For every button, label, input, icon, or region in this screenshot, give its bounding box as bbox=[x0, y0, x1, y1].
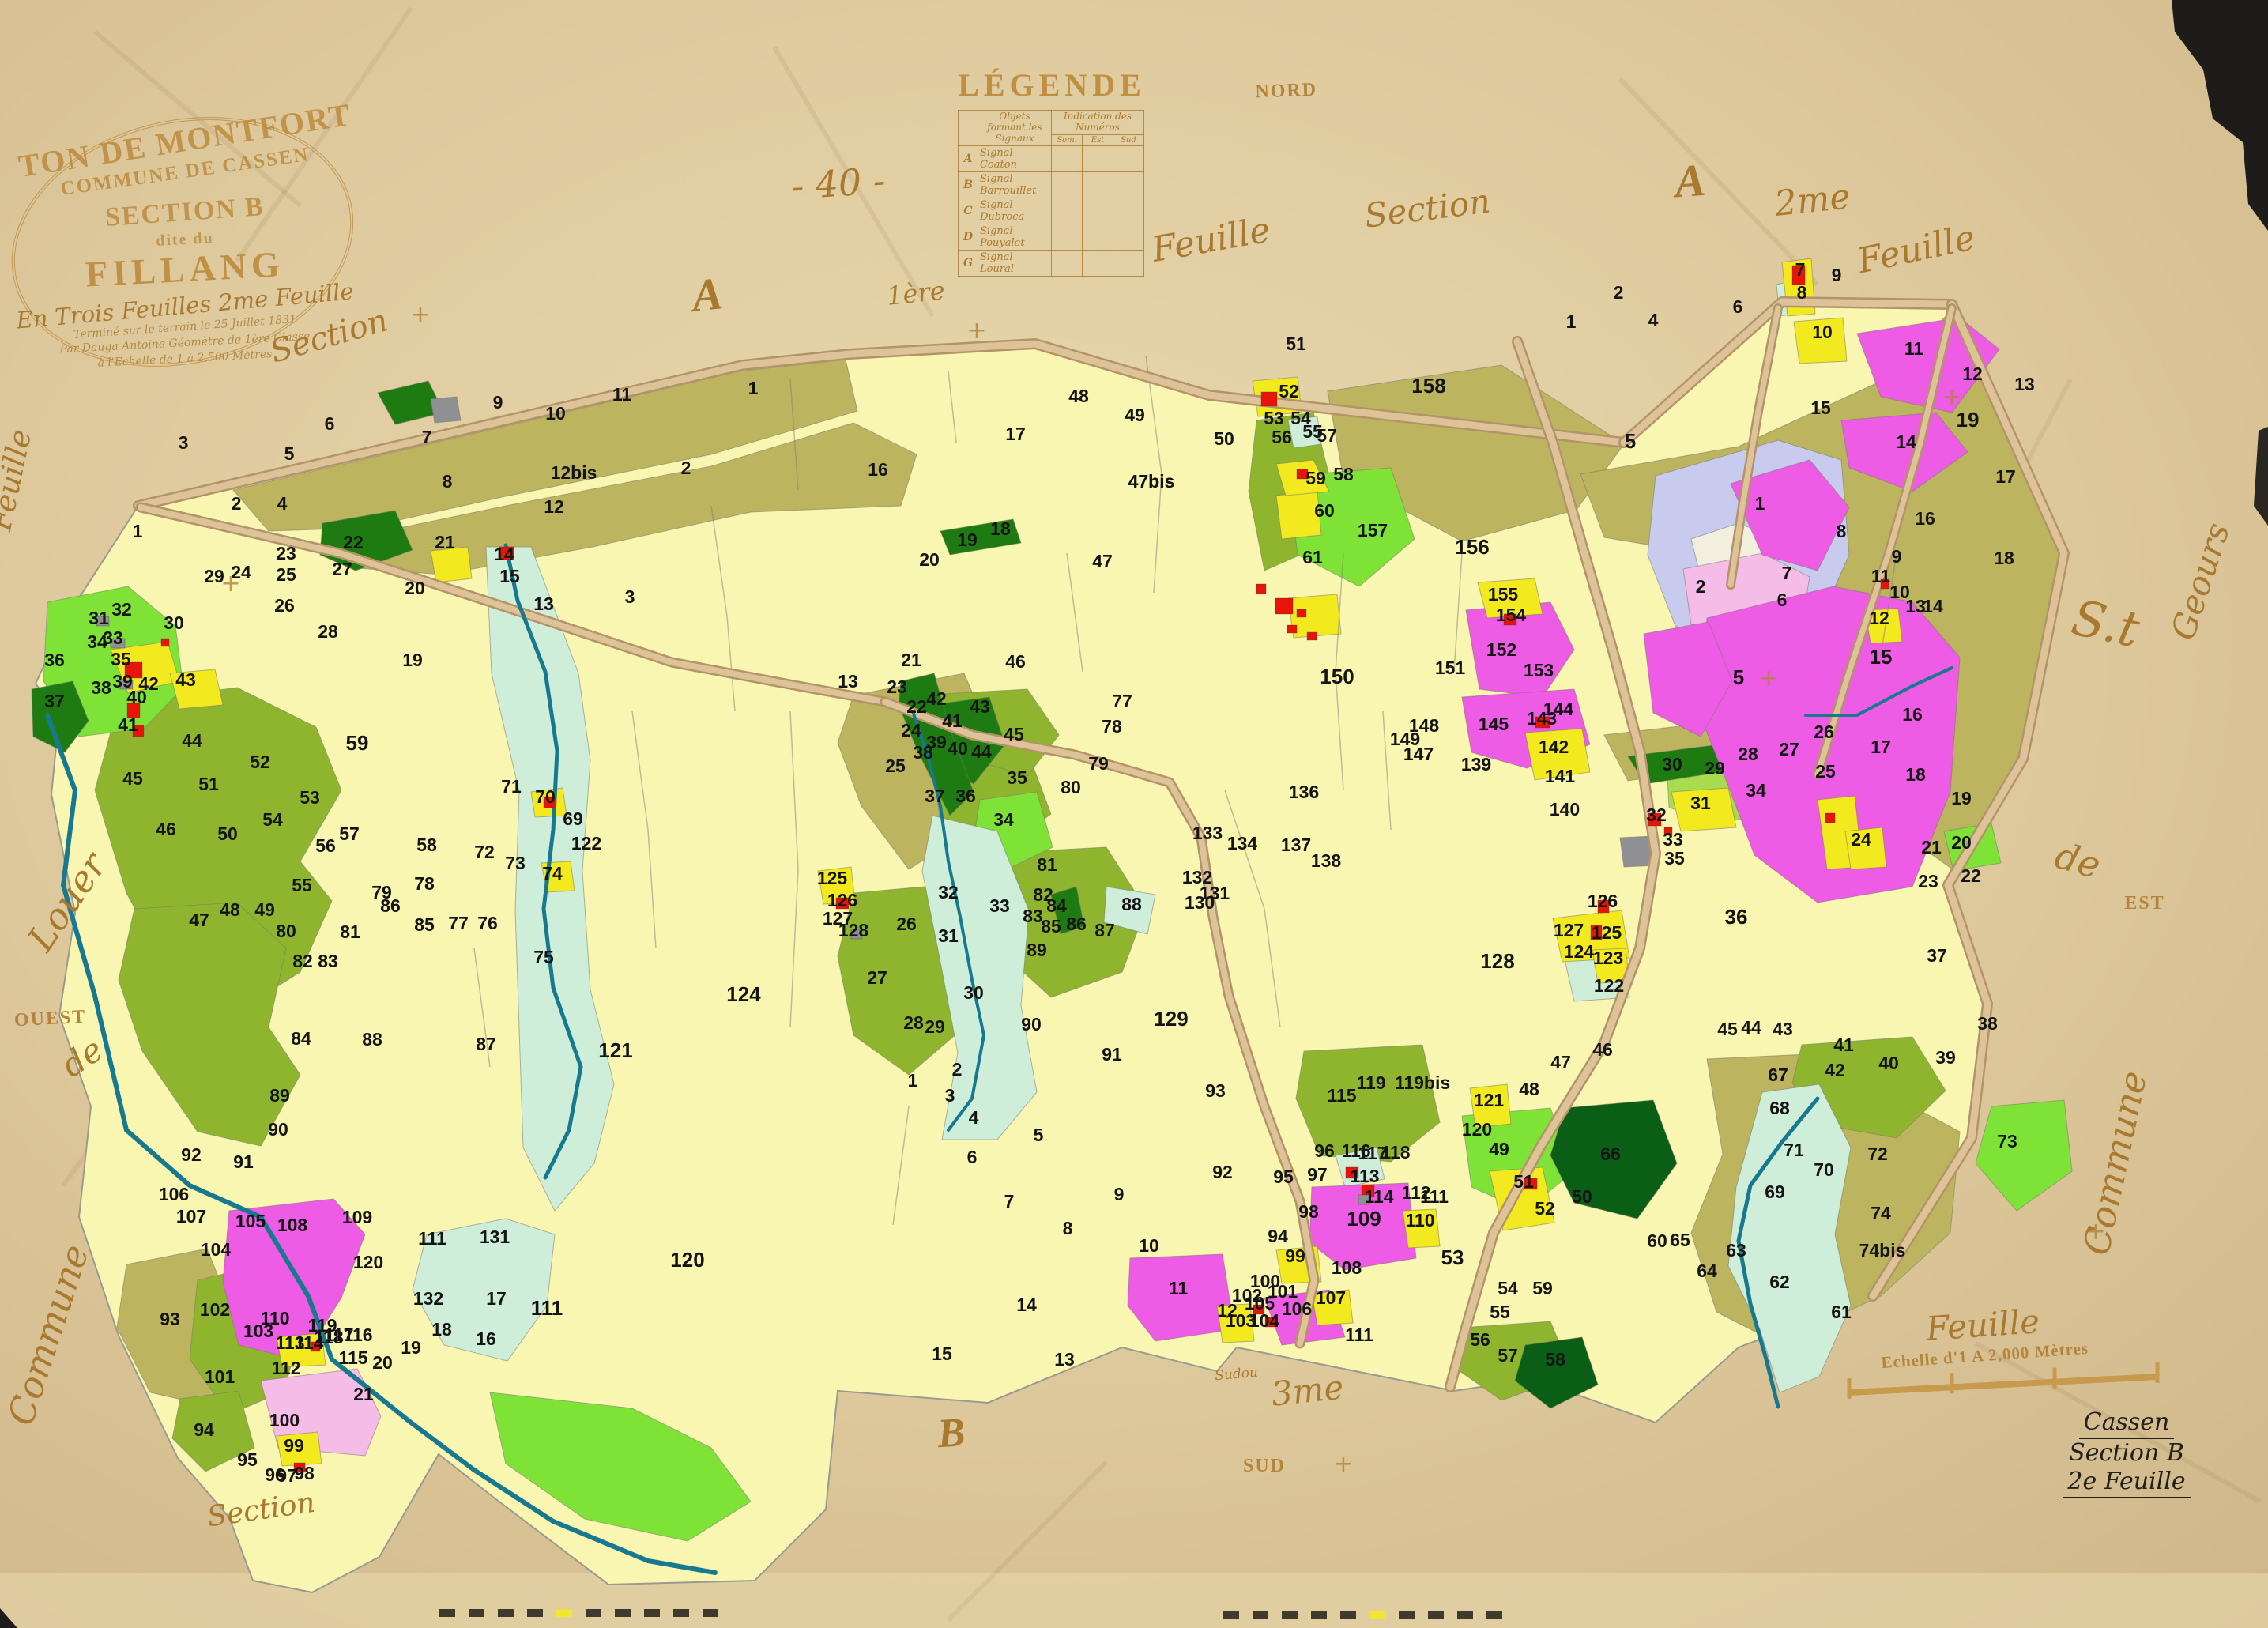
parcel-number: 88 bbox=[1121, 894, 1142, 914]
parcel-number: 128 bbox=[838, 920, 869, 940]
parcel-number: 18 bbox=[1905, 764, 1926, 785]
parcel-number: 55 bbox=[292, 875, 312, 895]
parcel-number: 142 bbox=[1539, 737, 1569, 757]
survey-cross: + bbox=[410, 301, 430, 329]
note-section: Section B bbox=[2036, 1439, 2217, 1468]
parcel-number: 153 bbox=[1524, 660, 1554, 680]
parcel-number: 6 bbox=[1777, 590, 1788, 610]
parcel-number: 109 bbox=[1347, 1207, 1381, 1230]
parcel-number: 85 bbox=[414, 914, 435, 935]
parcel-number: 74 bbox=[542, 863, 563, 884]
parcel-number: 36 bbox=[955, 786, 976, 806]
margin-label: 3me bbox=[1269, 1367, 1345, 1413]
parcel-number: 22 bbox=[1961, 865, 1981, 886]
parcel-number: 152 bbox=[1486, 639, 1516, 660]
parcel-number: 18 bbox=[1994, 548, 2014, 568]
parcel-number: 9 bbox=[493, 392, 503, 413]
parcel-number: 53 bbox=[1441, 1245, 1464, 1269]
parcel-number: 47bis bbox=[1128, 471, 1175, 492]
parcel-number: 91 bbox=[1102, 1044, 1122, 1065]
parcel-number: 77 bbox=[448, 913, 469, 933]
edge-tick bbox=[1340, 1611, 1356, 1619]
parcel-number: 60 bbox=[1647, 1230, 1667, 1251]
parcel-number: 42 bbox=[138, 673, 159, 694]
edge-tick bbox=[673, 1609, 689, 1617]
parcel-number: 70 bbox=[1814, 1159, 1834, 1180]
parcel-number: 28 bbox=[318, 621, 338, 642]
parcel-number: 12 bbox=[544, 496, 564, 517]
parcel-number: 93 bbox=[1205, 1080, 1226, 1101]
parcel-number: 105 bbox=[235, 1211, 266, 1231]
parcel-number: 121 bbox=[598, 1038, 632, 1062]
parcel-number: 25 bbox=[1815, 761, 1836, 782]
parcel-number: 69 bbox=[1765, 1181, 1785, 1202]
parcel-number: 72 bbox=[1867, 1144, 1888, 1164]
parcel-number: 17 bbox=[1995, 466, 2016, 487]
parcel-number: 17 bbox=[486, 1288, 507, 1309]
parcel-number: 19 bbox=[401, 1337, 421, 1358]
parcel-number: 78 bbox=[1102, 716, 1122, 737]
parcel-number: 94 bbox=[1268, 1226, 1288, 1246]
parcel-number: 9 bbox=[1892, 546, 1902, 567]
parcel-number: 45 bbox=[1004, 724, 1024, 744]
parcel-number: 132 bbox=[413, 1288, 443, 1309]
parcel-number: 6 bbox=[967, 1147, 978, 1167]
parcel-number: 123 bbox=[1593, 948, 1623, 968]
parcel-number: 74bis bbox=[1859, 1240, 1906, 1261]
parcel-number: 4 bbox=[1648, 310, 1659, 330]
legend-row-label: Signal Coaton bbox=[978, 145, 1052, 171]
parcel-number: 49 bbox=[1489, 1139, 1509, 1159]
parcel-number: 157 bbox=[1358, 520, 1388, 541]
parcel-number: 48 bbox=[220, 899, 240, 920]
parcel-number: 116 bbox=[1341, 1140, 1370, 1161]
parcel-number: 37 bbox=[925, 786, 945, 806]
parcel-number: 5 bbox=[1625, 429, 1636, 453]
parcel-number: 83 bbox=[1023, 906, 1043, 926]
building-mark bbox=[1297, 609, 1306, 617]
parcel-number: 115 bbox=[338, 1347, 367, 1368]
parcel-number: 87 bbox=[476, 1034, 496, 1054]
parcel-number: 120 bbox=[353, 1252, 383, 1272]
legend-empty-cell bbox=[1052, 250, 1083, 276]
parcel-number: 111 bbox=[1420, 1186, 1449, 1207]
legend-subheader: Est bbox=[1083, 134, 1113, 145]
parcel-number: 90 bbox=[268, 1119, 288, 1140]
parcel-number: 34 bbox=[993, 809, 1014, 830]
building-mark bbox=[161, 639, 169, 646]
parcel-number: 108 bbox=[1332, 1257, 1362, 1278]
parcel-number: 83 bbox=[318, 951, 338, 971]
parcel-number: 41 bbox=[942, 710, 963, 731]
legend-empty-cell bbox=[1052, 171, 1083, 198]
parcel-number: 57 bbox=[1317, 425, 1337, 446]
parcel-number: 21 bbox=[901, 650, 921, 670]
parcel-number: 36 bbox=[1725, 905, 1748, 929]
parcel-number: 92 bbox=[1212, 1162, 1233, 1182]
parcel-number: 11 bbox=[1904, 338, 1924, 359]
parcel-number: 5 bbox=[1034, 1125, 1044, 1145]
parcel-number: 20 bbox=[405, 578, 425, 598]
parcel-number: 46 bbox=[156, 819, 176, 839]
building-mark bbox=[1307, 632, 1317, 640]
parcel-number: 15 bbox=[932, 1343, 952, 1364]
parcel-number: 74 bbox=[1871, 1203, 1891, 1223]
parcel-number: 12bis bbox=[551, 462, 597, 483]
parcel-number: 18 bbox=[431, 1319, 452, 1340]
parcel-number: 4 bbox=[277, 493, 288, 514]
parcel-number: 3 bbox=[945, 1085, 955, 1106]
parcel-number: 2 bbox=[1696, 576, 1706, 597]
parcel-number: 38 bbox=[1977, 1013, 1998, 1034]
legend-row: GSignal Loural bbox=[959, 250, 1144, 276]
parcel-number: 36 bbox=[44, 650, 65, 670]
parcel-number: 50 bbox=[217, 823, 238, 844]
parcel-number: 53 bbox=[1264, 408, 1284, 428]
parcel-number: 61 bbox=[1302, 547, 1323, 567]
parcel-number: 59 bbox=[1305, 468, 1326, 488]
parcel-number: 111 bbox=[531, 1296, 563, 1320]
parcel-number: 49 bbox=[1125, 405, 1145, 425]
parcel-number: 87 bbox=[1094, 920, 1115, 940]
parcel-number: 9 bbox=[1114, 1184, 1125, 1204]
parcel-number: 24 bbox=[901, 720, 921, 741]
parcel-number: 46 bbox=[1592, 1039, 1613, 1060]
edge-tick bbox=[1311, 1611, 1327, 1619]
parcel-number: 2 bbox=[232, 493, 242, 514]
survey-cross: + bbox=[1758, 665, 1778, 692]
parcel-number: 47 bbox=[189, 910, 209, 930]
parcel-number: 114 bbox=[1364, 1186, 1393, 1207]
legend-row-label: Signal Loural bbox=[978, 250, 1052, 276]
parcel-number: 51 bbox=[198, 774, 219, 794]
parcel-number: 121 bbox=[1474, 1090, 1505, 1110]
parcel-number: 116 bbox=[343, 1325, 372, 1345]
parcel-number: 58 bbox=[1545, 1349, 1565, 1370]
parcel-number: 106 bbox=[1282, 1298, 1312, 1319]
edge-tick bbox=[586, 1609, 601, 1617]
parcel-number: 66 bbox=[1600, 1144, 1621, 1164]
parcel-number: 158 bbox=[1411, 374, 1445, 398]
parcel-number: 6 bbox=[325, 413, 335, 434]
parcel-number: 27 bbox=[332, 559, 352, 579]
parcel-number: 44 bbox=[1741, 1017, 1761, 1038]
parcel-number: 98 bbox=[1298, 1201, 1319, 1222]
parcel-number: 35 bbox=[111, 649, 131, 669]
legend-row-letter: B bbox=[959, 171, 978, 198]
parcel-number: 73 bbox=[1997, 1131, 2017, 1151]
parcel-number: 99 bbox=[1285, 1245, 1305, 1266]
legend-empty-cell bbox=[1083, 250, 1113, 276]
parcel-number: 16 bbox=[1915, 508, 1935, 529]
parcel-number: 21 bbox=[1921, 837, 1942, 857]
parcel-number: 133 bbox=[1192, 823, 1223, 843]
parcel-number: 120 bbox=[670, 1248, 704, 1272]
parcel-number: 101 bbox=[205, 1366, 235, 1387]
parcel-number: 55 bbox=[1490, 1302, 1510, 1322]
parcel-number: 60 bbox=[1314, 500, 1335, 521]
margin-label: NORD bbox=[1255, 80, 1318, 103]
parcel-number: 13 bbox=[533, 594, 554, 614]
edge-tick bbox=[1399, 1611, 1415, 1619]
edge-tick bbox=[615, 1609, 631, 1617]
parcel-number: 80 bbox=[276, 921, 296, 941]
parcel-number: 147 bbox=[1403, 744, 1434, 764]
parcel-number: 76 bbox=[477, 913, 498, 933]
legend-row: BSignal Barrouillet bbox=[959, 171, 1144, 198]
parcel-number: 126 bbox=[1588, 891, 1618, 911]
parcel-number: 96 bbox=[1314, 1140, 1335, 1161]
parcel-number: 120 bbox=[1462, 1119, 1492, 1140]
parcel-number: 129 bbox=[1154, 1007, 1188, 1031]
parcel-number: 85 bbox=[1041, 916, 1061, 936]
legend-empty-cell bbox=[1052, 224, 1083, 250]
parcel-number: 29 bbox=[925, 1016, 945, 1037]
parcel-number: 71 bbox=[1784, 1140, 1804, 1160]
parcel-number: 27 bbox=[1779, 739, 1799, 759]
parcel-number: 31 bbox=[938, 925, 959, 946]
parcel-number: 134 bbox=[1227, 833, 1258, 854]
parcel-number: 89 bbox=[1027, 940, 1047, 960]
edge-tick bbox=[1369, 1611, 1385, 1619]
parcel-number: 75 bbox=[533, 947, 554, 967]
parcel-number: 10 bbox=[1812, 322, 1833, 342]
parcel-number: 53 bbox=[300, 787, 320, 808]
parcel-number: 90 bbox=[1021, 1014, 1042, 1034]
parcel-number: 56 bbox=[1272, 427, 1292, 447]
parcel-number: 93 bbox=[160, 1309, 180, 1329]
paper-bottom-strip bbox=[0, 1573, 2268, 1628]
parcel-number: 34 bbox=[1746, 780, 1766, 801]
parcel-number: 84 bbox=[291, 1028, 311, 1049]
parcel-number: 58 bbox=[416, 835, 437, 855]
parcel-number: 112 bbox=[271, 1358, 300, 1378]
parcel-number: 94 bbox=[194, 1419, 214, 1440]
parcel-number: 119bis bbox=[1395, 1072, 1450, 1093]
parcel-number: 47 bbox=[1092, 551, 1113, 571]
parcel-number: 8 bbox=[443, 471, 453, 492]
parcel-number: 35 bbox=[1007, 767, 1027, 788]
legend-empty-cell bbox=[1113, 198, 1144, 224]
legend-empty-cell bbox=[1052, 198, 1083, 224]
building-mark bbox=[1261, 392, 1277, 406]
parcel-number: 13 bbox=[1054, 1349, 1075, 1370]
legend-empty-cell bbox=[1113, 145, 1144, 171]
parcel-number: 48 bbox=[1519, 1079, 1539, 1099]
parcel-number: 32 bbox=[938, 882, 959, 903]
parcel-number: 24 bbox=[1851, 829, 1871, 850]
parcel-number: 125 bbox=[817, 868, 848, 888]
parcel-number: 28 bbox=[1738, 744, 1758, 764]
parcel-number: 32 bbox=[1646, 805, 1667, 825]
parcel-number: 31 bbox=[89, 608, 109, 628]
legend-row: CSignal Dubroca bbox=[959, 198, 1144, 224]
parcel-number: 29 bbox=[1705, 758, 1725, 778]
parcel-number: 17 bbox=[1871, 737, 1891, 757]
legend-row: ASignal Coaton bbox=[959, 145, 1144, 171]
parcel-number: 1 bbox=[748, 378, 759, 398]
parcel-number: 47 bbox=[1550, 1052, 1571, 1072]
parcel-number: 79 bbox=[1088, 753, 1109, 774]
parcel-number: 91 bbox=[233, 1151, 254, 1172]
note-commune: Cassen bbox=[2079, 1408, 2175, 1439]
legend-empty-cell bbox=[1083, 198, 1113, 224]
parcel-number: 70 bbox=[535, 786, 556, 807]
building-mark bbox=[1256, 584, 1266, 594]
parcel-number: 72 bbox=[474, 842, 495, 862]
parcel-number: 23 bbox=[276, 543, 296, 563]
legend-empty-cell bbox=[1083, 145, 1113, 171]
parcel-number: 64 bbox=[1697, 1261, 1717, 1281]
legend-row-letter: D bbox=[959, 224, 978, 250]
parcel-number: 71 bbox=[501, 776, 522, 797]
parcel-number: 42 bbox=[926, 688, 947, 709]
parcel-number: 51 bbox=[1286, 334, 1306, 354]
parcel-number: 30 bbox=[164, 612, 184, 633]
survey-cross: + bbox=[1333, 1450, 1353, 1478]
legend-title: LÉGENDE bbox=[958, 66, 1146, 104]
parcel-number: 102 bbox=[1232, 1285, 1262, 1306]
parcel-number: 1 bbox=[1566, 311, 1577, 332]
parcel-number: 43 bbox=[1773, 1019, 1793, 1039]
parcel-number: 10 bbox=[545, 403, 566, 424]
parcel-number: 1 bbox=[1755, 493, 1765, 514]
parcel-number: 132 bbox=[1182, 867, 1212, 887]
parcel-number: 4 bbox=[969, 1107, 979, 1128]
legend-col-numeros: Indication des Numéros bbox=[1052, 111, 1144, 135]
parcel-number: 122 bbox=[1594, 975, 1624, 996]
parcel-number: 56 bbox=[315, 835, 336, 856]
parcel-number: 140 bbox=[1550, 799, 1580, 820]
parcel-number: 98 bbox=[294, 1463, 315, 1483]
parcel-number: 14 bbox=[494, 544, 514, 564]
parcel-number: 11 bbox=[1169, 1278, 1189, 1298]
edge-tick bbox=[1457, 1611, 1473, 1619]
legend-row-label: Signal Barrouillet bbox=[978, 171, 1052, 198]
parcel-number: 50 bbox=[1572, 1186, 1592, 1207]
parcel-number: 13 bbox=[838, 671, 858, 692]
parcel-number: 45 bbox=[1717, 1019, 1738, 1039]
survey-cross: + bbox=[1942, 383, 1961, 411]
parcel-number: 65 bbox=[1670, 1230, 1690, 1250]
parcel-number: 41 bbox=[118, 714, 138, 735]
legend-table: Objets formant les Signaux Indication de… bbox=[958, 110, 1144, 277]
parcel-number: 3 bbox=[625, 586, 635, 607]
parcel-number: 10 bbox=[1139, 1235, 1159, 1256]
parcel-number: 86 bbox=[1066, 914, 1087, 934]
parcel-number: 9 bbox=[1832, 265, 1842, 285]
parcel-number: 17 bbox=[1005, 424, 1026, 444]
parcel-number: 156 bbox=[1455, 535, 1489, 559]
parcel-number: 25 bbox=[885, 756, 906, 776]
parcel-number: 2 bbox=[1614, 282, 1624, 303]
edge-tick bbox=[1428, 1611, 1444, 1619]
parcel-number: 15 bbox=[1870, 645, 1893, 669]
parcel-number: 63 bbox=[1726, 1240, 1746, 1261]
legend-row: DSignal Pouyalet bbox=[959, 224, 1144, 250]
parcel-number: 7 bbox=[1004, 1191, 1015, 1212]
parcel-number: 44 bbox=[182, 730, 202, 751]
parcel-number: 102 bbox=[200, 1299, 230, 1320]
parcel-number: 15 bbox=[1810, 398, 1831, 418]
parcel-number: 110 bbox=[260, 1308, 289, 1328]
parcel-number: 155 bbox=[1488, 584, 1519, 605]
parcel-number: 26 bbox=[896, 914, 917, 934]
parcel-number: 18 bbox=[990, 518, 1011, 539]
legend-row-letter: C bbox=[959, 198, 978, 224]
legend: LÉGENDE Objets formant les Signaux Indic… bbox=[958, 66, 1146, 277]
parcel-number: 81 bbox=[340, 921, 360, 942]
parcel-number: 43 bbox=[175, 669, 196, 690]
parcel-number: 7 bbox=[1795, 259, 1806, 280]
parcel-number: 52 bbox=[250, 752, 270, 772]
parcel-number: 8 bbox=[1063, 1218, 1073, 1238]
parcel-number: 84 bbox=[1046, 895, 1067, 916]
edge-tick bbox=[469, 1609, 484, 1617]
edge-tick bbox=[1486, 1611, 1502, 1619]
parcel-number: 52 bbox=[1279, 381, 1299, 401]
parcel-number: 38 bbox=[91, 677, 111, 698]
parcel-number: 12 bbox=[1869, 608, 1889, 628]
parcel-number: 16 bbox=[1902, 704, 1923, 725]
parcel-number: 54 bbox=[1498, 1278, 1518, 1298]
edge-tick bbox=[498, 1609, 514, 1617]
margin-label: SUD bbox=[1243, 1456, 1286, 1476]
parcel-number: 80 bbox=[1061, 777, 1081, 797]
parcel-number: 20 bbox=[919, 549, 940, 570]
parcel-number: 127 bbox=[1554, 920, 1584, 940]
parcel-number: 51 bbox=[1513, 1171, 1534, 1192]
parcel-number: 95 bbox=[1273, 1166, 1294, 1187]
parcel-number: 107 bbox=[176, 1206, 206, 1227]
legend-col-objets: Objets formant les Signaux bbox=[978, 111, 1052, 146]
parcel-number: 5 bbox=[1733, 665, 1744, 689]
parcel-number: 32 bbox=[111, 599, 132, 620]
legend-empty-cell bbox=[1052, 145, 1083, 171]
note-feuille: 2e Feuille bbox=[2063, 1468, 2190, 1498]
parcel-number: 139 bbox=[1461, 754, 1491, 774]
parcel-number: 34 bbox=[87, 631, 107, 652]
parcel-number: 119 bbox=[1356, 1072, 1385, 1093]
parcel-number: 30 bbox=[1662, 754, 1682, 774]
parcel-number: 77 bbox=[1112, 691, 1132, 711]
parcel-number: 8 bbox=[1837, 521, 1847, 541]
edge-tick bbox=[703, 1609, 718, 1617]
legend-empty-cell bbox=[1083, 171, 1113, 198]
edge-tick bbox=[527, 1609, 543, 1617]
building-mark bbox=[1275, 598, 1293, 614]
parcel-number: 57 bbox=[339, 823, 360, 844]
parcel-number: 100 bbox=[269, 1410, 300, 1430]
parcel-number: 27 bbox=[867, 967, 887, 988]
parcel-number: 151 bbox=[1435, 658, 1466, 678]
building-mark bbox=[1825, 813, 1835, 823]
archival-note: Cassen Section B 2e Feuille bbox=[2036, 1408, 2217, 1498]
parcel-number: 59 bbox=[346, 731, 369, 755]
legend-row-label: Signal Pouyalet bbox=[978, 224, 1052, 250]
survey-cross: + bbox=[220, 570, 240, 597]
margin-label: 1ère bbox=[885, 275, 946, 311]
parcel-number: 35 bbox=[1664, 848, 1685, 869]
margin-label: OUEST bbox=[13, 1007, 87, 1031]
parcel-number: 26 bbox=[274, 595, 295, 616]
parcel-number: 81 bbox=[1037, 854, 1057, 875]
margin-label: EST bbox=[2124, 893, 2164, 914]
survey-cross: + bbox=[966, 317, 986, 345]
parcel-number: 54 bbox=[262, 809, 283, 830]
parcel-number: 3 bbox=[179, 432, 189, 453]
edge-tick bbox=[644, 1609, 660, 1617]
